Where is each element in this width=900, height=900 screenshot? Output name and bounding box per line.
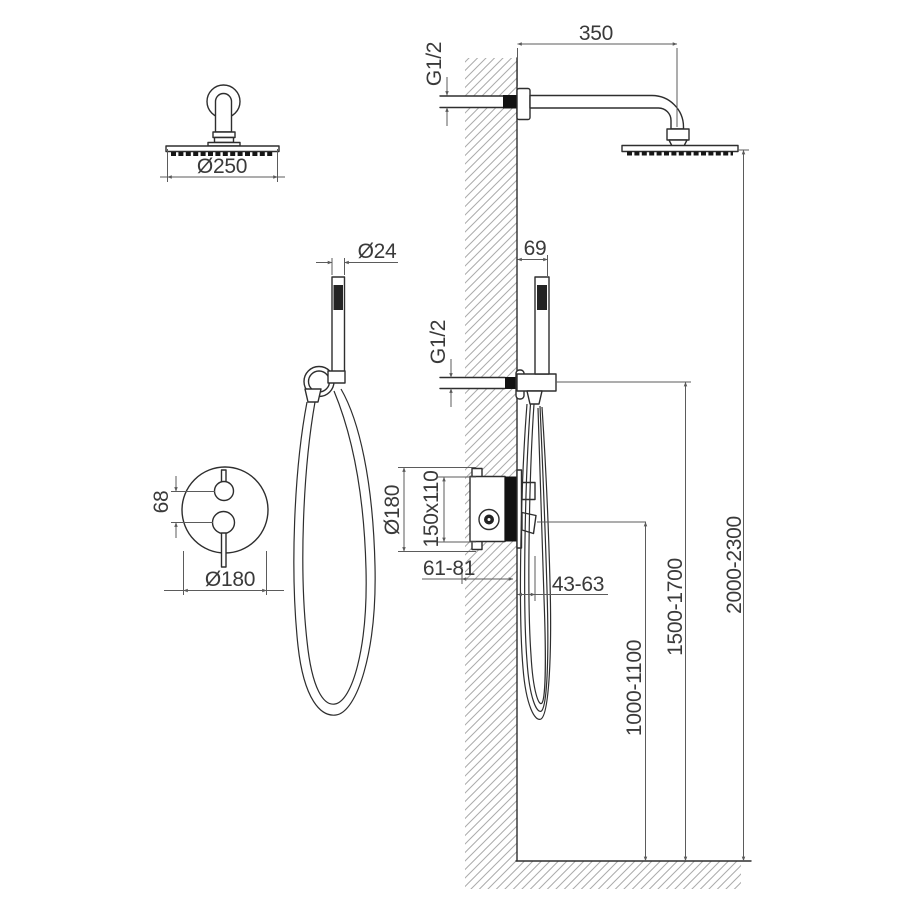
dim-holder-offset-label: 69 [524, 237, 547, 260]
dim-holder-height-label: 1500-1700 [664, 558, 687, 656]
arm-nut [667, 129, 689, 140]
dim-head-diameter-label: Ø250 [197, 155, 247, 178]
holder-bracket [517, 374, 556, 391]
outlet-wall-fitting [505, 377, 517, 389]
head-joint-ring-2 [215, 138, 234, 143]
dim-trim-diameter-front-label: Ø180 [205, 568, 255, 591]
shower-arm [530, 96, 684, 130]
wand-grip-side [537, 285, 547, 310]
head-disc-front [166, 146, 279, 152]
outlet-pipe-gap [440, 378, 505, 389]
mixer-knob-front [213, 512, 235, 534]
valve-port-dot [488, 518, 491, 521]
mixer-trim-front-view [182, 467, 268, 567]
wall-section [465, 58, 751, 889]
supply-pipe-gap [440, 96, 503, 108]
dim-mixer-height-label: 1000-1100 [623, 640, 646, 736]
head-disc-side [622, 146, 738, 152]
floor-hatch [517, 861, 741, 889]
dim-recess-depth-label: 61-81 [423, 557, 475, 580]
dim-head-height-label: 2000-2300 [723, 516, 746, 614]
arm-wall-fitting [503, 95, 517, 109]
technical-drawing-canvas: 350 G1/2 Ø250 Ø24 69 G1/2 68 Ø180 Ø180 1… [0, 0, 900, 900]
diverter-knob-side [522, 483, 535, 500]
dim-arm-length-label: 350 [579, 22, 613, 45]
wand-grip-front [334, 285, 344, 310]
mixer-lever-front [222, 533, 227, 567]
hand-shower-front-view [294, 277, 375, 715]
hose-nut-front [305, 389, 321, 402]
head-pipe-front [216, 94, 232, 133]
holder-clamp [328, 371, 345, 383]
dim-handle-spacing-label: 68 [150, 491, 173, 514]
diverter-lever-front [222, 470, 227, 483]
dim-trim-diameter-side-label: Ø180 [381, 485, 404, 535]
hose-nut-side [527, 391, 542, 404]
dim-hand-shower-diameter-label: Ø24 [358, 240, 397, 263]
shower-installation-drawing: 350 G1/2 Ø250 Ø24 69 G1/2 68 Ø180 Ø180 1… [0, 0, 900, 900]
hand-shower-hose-front [294, 389, 375, 715]
head-joint-ring-1 [213, 132, 235, 138]
rough-in-box-face [505, 477, 517, 542]
hand-shower-hose-side [520, 404, 550, 719]
dim-outlet-thread-label: G1/2 [427, 320, 450, 364]
arm-escutcheon [517, 89, 530, 120]
dimension-annotations [160, 44, 749, 861]
dim-arm-thread-label: G1/2 [423, 42, 446, 86]
overhead-shower-front-view [166, 85, 279, 154]
diverter-knob-front [215, 482, 234, 501]
dim-rough-in-box-label: 150x110 [420, 471, 443, 548]
dim-handle-projection-label: 43-63 [552, 573, 604, 596]
